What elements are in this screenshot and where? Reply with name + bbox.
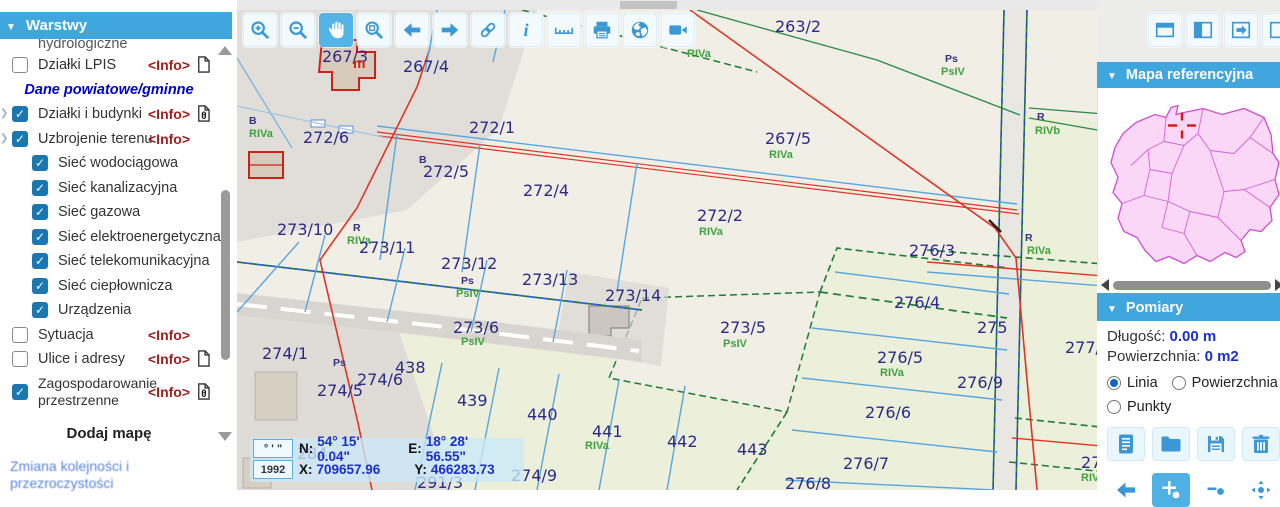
measure-mode-radio-linia[interactable]: Linia (1107, 375, 1158, 391)
layer-label: Sieć ciepłownicza (58, 278, 172, 294)
trash-icon (1249, 432, 1273, 456)
layer-label: Sieć kanalizacyjna (58, 180, 177, 196)
document-icon (194, 349, 213, 368)
parcel-label: 267/4 (403, 57, 449, 76)
layer-label: hydrologiczne (38, 39, 127, 52)
area-value: 0 m2 (1205, 348, 1239, 365)
layer-checkbox[interactable]: ✓ (32, 180, 48, 196)
parcel-label: 276/3 (909, 241, 955, 260)
save-button[interactable] (1197, 427, 1235, 461)
parcel-label: 276/7 (843, 454, 889, 473)
previous-view-icon (401, 19, 423, 41)
layer-checkbox[interactable] (12, 327, 28, 343)
parcel-label: Ps (333, 357, 346, 369)
report-button[interactable] (1107, 427, 1145, 461)
parcel-label: 273/12 (441, 254, 497, 273)
parcel-label: RIVa (769, 149, 794, 161)
identify-button[interactable]: i (509, 13, 543, 47)
layer-checkbox[interactable]: ✓ (12, 384, 28, 400)
parcel-label: R (1037, 111, 1045, 123)
folder-button[interactable] (1152, 427, 1190, 461)
layer-label: Zagospodarowanie przestrzenne (38, 375, 150, 407)
radio-label: Linia (1127, 375, 1158, 391)
link-icon (477, 19, 499, 41)
scroll-left-icon[interactable] (1101, 279, 1109, 291)
layer-item: ✓Sieć kanalizacyjna (0, 176, 218, 201)
trash-button[interactable] (1242, 427, 1280, 461)
collapse-arrow-icon[interactable]: ▼ (1107, 64, 1117, 90)
parcel-label: PsIV (456, 288, 481, 300)
parcel-label: RIVa (687, 48, 712, 60)
expand-chevron-icon[interactable]: ❯ (0, 133, 8, 144)
parcel-label: PsIV (941, 66, 966, 78)
layer-label: Urządzenia (58, 302, 131, 318)
expand-chevron-icon[interactable]: ❯ (0, 108, 8, 119)
east-value: 18° 28' 56.55" (426, 434, 510, 464)
parcel-label: 273/14 (605, 286, 661, 305)
layer-checkbox[interactable]: ✓ (32, 229, 48, 245)
parcel-label: 263/2 (775, 17, 821, 36)
layer-info-link[interactable]: <Info> (148, 384, 190, 400)
parcel-label: RIVb (1035, 125, 1060, 137)
radio-icon[interactable] (1172, 376, 1186, 390)
parcel-label: 267/5 (765, 129, 811, 148)
x-label: X: (299, 462, 313, 477)
svg-text:i: i (523, 20, 529, 40)
layout-toolbar (1148, 13, 1280, 47)
parcel-label: 276/5 (877, 348, 923, 367)
radio-icon[interactable] (1107, 376, 1121, 390)
parcel-label: 272/2 (697, 206, 743, 225)
zoom-out-icon (287, 19, 309, 41)
add-point-icon (1159, 478, 1183, 502)
length-value: 0.00 m (1170, 328, 1217, 345)
layer-item: ✓Sieć telekomunikacyjna (0, 249, 218, 274)
add-map-button[interactable]: Dodaj mapę (0, 425, 218, 442)
parcel-label: 272/5 (423, 162, 469, 181)
zoom-extent-button[interactable] (357, 13, 391, 47)
measure-mode-radio-powierzchnia[interactable]: Powierzchnia (1172, 375, 1278, 391)
layout-top-icon (1154, 19, 1176, 41)
collapse-arrow-icon[interactable]: ▼ (1107, 297, 1117, 323)
layout-plain-icon (1268, 19, 1280, 41)
parcel-label: 272/6 (303, 128, 349, 147)
save-icon (1204, 432, 1228, 456)
measure-mode-radios: LiniaPowierzchniaPunkty (1107, 375, 1279, 415)
move-point-icon (1249, 478, 1273, 502)
parcel-label: 272/4 (523, 181, 569, 200)
layer-checkbox[interactable]: ✓ (32, 278, 48, 294)
zoom-in-button[interactable] (243, 13, 277, 47)
globe-icon (629, 19, 651, 41)
layer-checkbox[interactable] (12, 57, 28, 73)
dms-format-button[interactable]: ° ' " (253, 439, 293, 458)
identify-icon: i (515, 19, 537, 41)
map-toolbar: i (243, 13, 695, 47)
parcel-label: PsIV (723, 338, 748, 350)
layers-panel-header[interactable]: ▼Warstwy (0, 12, 232, 39)
layer-label: Sieć gazowa (58, 204, 140, 220)
layer-label: Ulice i adresy (38, 351, 125, 367)
radio-label: Punkty (1127, 399, 1171, 415)
east-label: E: (408, 441, 422, 456)
measurements-panel-title: Pomiary (1126, 300, 1183, 316)
layout-top-button[interactable] (1148, 13, 1182, 47)
layer-label: Sieć wodociągowa (58, 155, 178, 171)
parcel-label: 273/11 (359, 238, 415, 257)
right-panel-stack: ▼Mapa referencyjna (1097, 62, 1280, 498)
layer-item: ✓Zagospodarowanie przestrzenne<Info> (0, 372, 218, 412)
measurements-panel: Długość: 0.00 m Powierzchnia: 0 m2 Linia… (1097, 321, 1280, 498)
y-label: Y: (414, 462, 427, 477)
layer-checkbox[interactable]: ✓ (12, 131, 28, 147)
layer-label: Sytuacja (38, 327, 94, 343)
reference-map-scrollbar[interactable] (1097, 277, 1280, 295)
reference-map-panel-title: Mapa referencyjna (1126, 67, 1253, 83)
parcel-label: Ps (461, 275, 474, 287)
globe-button[interactable] (623, 13, 657, 47)
measure-edit-buttons (1107, 473, 1280, 507)
layer-item: Działki LPIS<Info> (0, 53, 218, 78)
scroll-up-icon[interactable] (218, 46, 232, 55)
parcel-label: 276/9 (957, 373, 1003, 392)
zoom-out-button[interactable] (281, 13, 315, 47)
layer-info-link[interactable]: <Info> (148, 351, 190, 367)
back-arrow-button[interactable] (1107, 473, 1145, 507)
parcel-label: 439 (457, 391, 488, 410)
layer-item: Ulice i adresy<Info> (0, 347, 218, 372)
radio-label: Powierzchnia (1192, 375, 1278, 391)
poland-overview-map[interactable] (1098, 88, 1280, 277)
parcel-label: 273/5 (720, 318, 766, 337)
layer-checkbox[interactable]: ✓ (32, 302, 48, 318)
pan-icon (325, 19, 347, 41)
sidebar-scrollbar-thumb[interactable] (221, 190, 230, 360)
parcel-label: 276/8 (785, 474, 831, 490)
layer-item: ✓Sieć wodociągowa (0, 151, 218, 176)
next-view-icon (439, 19, 461, 41)
measure-mode-radio-punkty[interactable]: Punkty (1107, 399, 1171, 415)
remove-point-button[interactable] (1197, 473, 1235, 507)
reorder-transparency-link[interactable]: Zmiana kolejności i przezroczystości (10, 458, 200, 492)
scroll-right-icon[interactable] (1275, 279, 1280, 291)
parcel-label: 273/13 (522, 270, 578, 289)
zoom-extent-icon (363, 19, 385, 41)
layout-plain-button[interactable] (1262, 13, 1280, 47)
parcel-label: 276/6 (865, 403, 911, 422)
video-button[interactable] (661, 13, 695, 47)
north-value: 54° 15' 0.04" (317, 434, 394, 464)
add-point-button[interactable] (1152, 473, 1190, 507)
layout-left-button[interactable] (1186, 13, 1220, 47)
reference-map-panel-header[interactable]: ▼Mapa referencyjna (1097, 62, 1280, 88)
reference-map[interactable] (1097, 88, 1280, 277)
layer-info-link[interactable]: <Info> (148, 57, 190, 73)
parcel-label: R (1025, 232, 1033, 244)
link-button[interactable] (471, 13, 505, 47)
epsg-1992-button[interactable]: 1992 (253, 460, 293, 479)
print-button[interactable] (585, 13, 619, 47)
layer-checkbox[interactable]: ✓ (32, 253, 48, 269)
layer-item: ✓Sieć ciepłownicza (0, 274, 218, 299)
parcel-label: RIVa (699, 226, 724, 238)
layer-label: Uzbrojenie terenu (38, 131, 152, 147)
parcel-label: 274/6 (357, 370, 403, 389)
measurements-panel-header[interactable]: ▼Pomiary (1097, 295, 1280, 321)
x-value: 709657.96 (317, 462, 381, 477)
layer-label: Sieć elektroenergetyczna (58, 229, 221, 245)
parcel-label: 272/1 (469, 118, 515, 137)
parcel-label: 442 (667, 432, 698, 451)
parcel-label: 274/5 (317, 381, 363, 400)
layer-item: ✓Sieć elektroenergetyczna (0, 225, 218, 250)
next-view-button[interactable] (433, 13, 467, 47)
parcel-label: RIVa (880, 367, 905, 379)
parcel-label: 275 (977, 318, 1008, 337)
layer-info-link[interactable]: <Info> (148, 131, 190, 147)
parcel-label: RIVa (1027, 245, 1052, 257)
coordinate-readout: ° ' " N: 54° 15' 0.04" E: 18° 28' 56.55"… (250, 438, 524, 482)
document-info-icon (194, 104, 213, 123)
layer-checkbox[interactable] (12, 351, 28, 367)
measure-icon (553, 19, 575, 41)
parcel-label: 274/1 (262, 344, 308, 363)
document-icon (194, 55, 213, 74)
layer-item-partial: hydrologiczne (0, 39, 218, 53)
parcel-label: R (353, 222, 361, 234)
reference-scrollbar-thumb[interactable] (1113, 281, 1271, 290)
layers-list: hydrologiczneDziałki LPIS<Info>Dane powi… (0, 39, 218, 412)
report-icon (1114, 432, 1138, 456)
back-arrow-icon (1114, 478, 1138, 502)
layer-label: Sieć telekomunikacyjna (58, 253, 210, 269)
layout-left-icon (1192, 19, 1214, 41)
parcel-label: 276/4 (894, 293, 940, 312)
layer-item: Sytuacja<Info> (0, 323, 218, 348)
layers-sidebar: ▼Warstwy hydrologiczneDziałki LPIS<Info>… (0, 0, 237, 490)
parcel-label: 273/10 (277, 220, 333, 239)
layer-checkbox[interactable]: ✓ (32, 155, 48, 171)
layer-item: ❯✓Działki i budynki<Info> (0, 102, 218, 127)
layers-panel-title: Warstwy (26, 17, 87, 34)
measure-button[interactable] (547, 13, 581, 47)
radio-icon[interactable] (1107, 400, 1121, 414)
zoom-in-icon (249, 19, 271, 41)
folder-icon (1159, 432, 1183, 456)
y-value: 466283.73 (431, 462, 495, 477)
collapse-arrow-icon[interactable]: ▼ (6, 14, 16, 41)
north-label: N: (299, 441, 313, 456)
parcel-label: 440 (527, 405, 558, 424)
layer-section-label: Dane powiatowe/gminne (0, 78, 218, 103)
parcel-label: RIVa (585, 440, 610, 452)
panel-arrow-button[interactable] (1224, 13, 1258, 47)
measure-file-buttons (1107, 427, 1280, 461)
layer-label: Działki i budynki (38, 106, 142, 122)
panel-arrow-icon (1230, 19, 1252, 41)
parcel-label: PsIV (461, 336, 486, 348)
parcel-label: RIVa (249, 128, 274, 140)
layer-item: ✓Sieć gazowa (0, 200, 218, 225)
layer-info-link[interactable]: <Info> (148, 327, 190, 343)
move-point-button[interactable] (1242, 473, 1280, 507)
parcel-label: 441 (592, 422, 623, 441)
length-label: Długość: (1107, 328, 1165, 345)
map-top-scrollbar-thumb[interactable] (620, 1, 677, 9)
layer-item: ✓Urządzenia (0, 298, 218, 323)
parcel-label: B (249, 115, 257, 127)
parcel-label: 443 (737, 440, 768, 459)
scroll-down-icon[interactable] (218, 432, 232, 441)
pan-button[interactable] (319, 13, 353, 47)
remove-point-icon (1204, 478, 1228, 502)
layer-item: ❯✓Uzbrojenie terenu<Info> (0, 127, 218, 152)
layer-label: Działki LPIS (38, 57, 116, 73)
parcel-label: 273/6 (453, 318, 499, 337)
area-label: Powierzchnia: (1107, 348, 1200, 365)
parcel-label: Ps (945, 53, 958, 65)
video-icon (667, 19, 689, 41)
layer-checkbox[interactable]: ✓ (32, 204, 48, 220)
print-icon (591, 19, 613, 41)
layer-info-link[interactable]: <Info> (148, 106, 190, 122)
parcel-label: m (353, 55, 365, 71)
previous-view-button[interactable] (395, 13, 429, 47)
layer-checkbox[interactable]: ✓ (12, 106, 28, 122)
document-info-icon (194, 382, 213, 401)
